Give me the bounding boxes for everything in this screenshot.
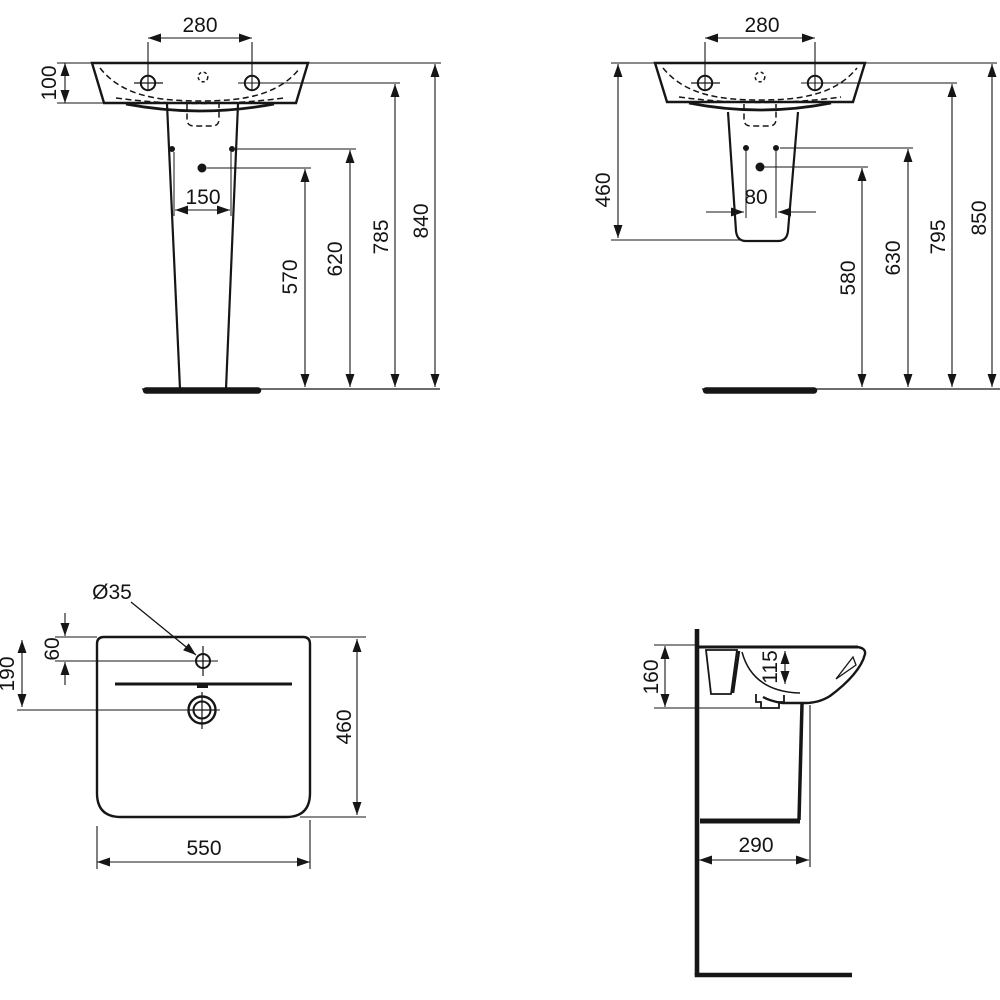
dim-label-190: 190 xyxy=(0,656,19,691)
drain-hole-dot xyxy=(198,164,207,173)
fixing-hole-dot xyxy=(229,146,235,152)
overflow-hole xyxy=(198,72,208,82)
trap-hidden-outline xyxy=(744,104,776,126)
fixing-bracket-section xyxy=(706,650,737,694)
dim-label-570: 570 xyxy=(279,259,302,294)
basin-front-lip xyxy=(689,103,831,110)
dim-label-100: 100 xyxy=(38,65,61,100)
semi-pedestal-outline xyxy=(728,112,798,241)
dim-label-550: 550 xyxy=(186,837,221,860)
trap-hidden-outline xyxy=(187,104,219,126)
dim-label-dia35: Ø35 xyxy=(92,581,132,604)
dim-label-80: 80 xyxy=(744,186,767,209)
dim-label-60: 60 xyxy=(41,637,64,660)
dim-label-280: 280 xyxy=(182,14,217,37)
dim-label-580: 580 xyxy=(837,260,860,295)
front-view-full-pedestal: 280 100 150 570 620 785 840 xyxy=(38,14,441,391)
overflow-notch xyxy=(197,684,208,688)
washbasin-technical-drawing: 280 100 150 570 620 785 840 xyxy=(0,0,1000,1000)
dim-label-460: 460 xyxy=(333,709,356,744)
dim-label-115: 115 xyxy=(759,650,782,683)
dim-label-150: 150 xyxy=(185,186,220,209)
drain-hole-dot xyxy=(756,163,765,172)
dim-label-840: 840 xyxy=(410,203,433,238)
front-view-semi-pedestal: 280 460 80 580 630 795 850 xyxy=(592,14,1000,391)
dim-label-620: 620 xyxy=(324,241,347,276)
bowl-hidden-edge xyxy=(663,68,857,100)
dim-label-290: 290 xyxy=(738,834,773,857)
fixing-hole-dot xyxy=(773,145,779,151)
drawing-svg: 280 100 150 570 620 785 840 xyxy=(0,0,1000,1000)
fixing-hole-dot xyxy=(169,146,175,152)
plan-view: Ø35 60 190 460 550 xyxy=(0,581,366,869)
leader-line-dia35 xyxy=(131,602,196,655)
basin-front-lip xyxy=(126,104,274,111)
dim-label-280: 280 xyxy=(744,14,779,37)
dim-label-785: 785 xyxy=(370,219,393,254)
dim-label-160: 160 xyxy=(640,659,663,694)
overflow-hole xyxy=(755,72,765,82)
dim-label-630: 630 xyxy=(882,240,905,275)
dim-label-460: 460 xyxy=(592,172,615,207)
dim-label-795: 795 xyxy=(927,219,950,254)
semi-pedestal-front-edge xyxy=(799,704,802,820)
dim-label-850: 850 xyxy=(968,200,991,235)
side-section-view: 160 115 290 xyxy=(640,629,865,975)
fixing-hole-dot xyxy=(743,145,749,151)
